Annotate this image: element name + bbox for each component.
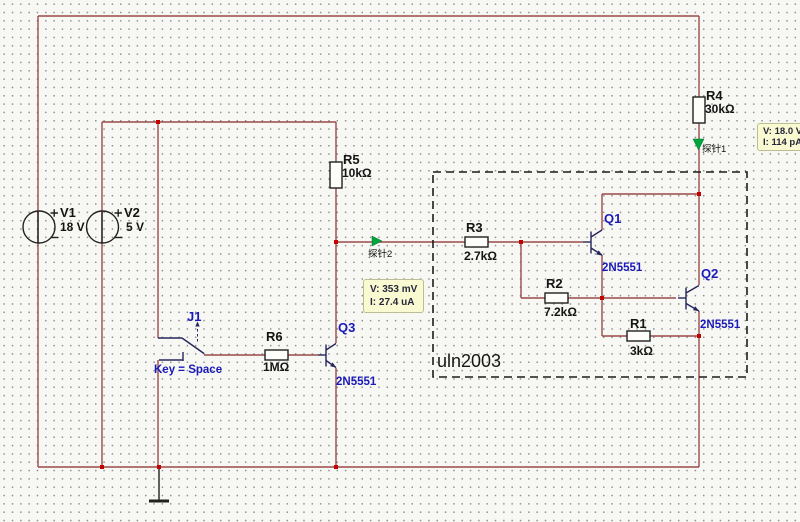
probe2-label[interactable]: 探针2 — [368, 246, 392, 260]
uln2003-boundary-box[interactable] — [433, 172, 747, 377]
probe1-current-readout: I: 114 pA — [763, 137, 800, 148]
junction-dot — [100, 465, 104, 469]
resistor-r3-body[interactable] — [465, 237, 488, 247]
r5-ref-label[interactable]: R5 — [343, 152, 360, 167]
v1-ref-label[interactable]: V1 — [60, 205, 76, 220]
resistor-r5-body[interactable] — [330, 162, 342, 188]
r1-value-label[interactable]: 3kΩ — [630, 344, 653, 358]
source-v2[interactable] — [87, 209, 123, 243]
v2-ref-label[interactable]: V2 — [124, 205, 140, 220]
q1-ref-label[interactable]: Q1 — [604, 211, 621, 226]
r2-ref-label[interactable]: R2 — [546, 276, 563, 291]
junction-dot — [334, 465, 338, 469]
resistor-r4-body[interactable] — [693, 97, 705, 123]
schematic-canvas: V1 18 V V2 5 V R5 10kΩ R4 30kΩ R3 2.7kΩ … — [0, 0, 800, 522]
r3-ref-label[interactable]: R3 — [466, 220, 483, 235]
transistor-q2[interactable] — [678, 286, 699, 312]
resistor-r2-body[interactable] — [545, 293, 568, 303]
probe2-tooltip: V: 353 mV I: 27.4 uA — [363, 279, 424, 313]
probe2-arrow-icon[interactable] — [372, 236, 382, 246]
uln2003-label[interactable]: uln2003 — [437, 351, 501, 372]
wire-r1-row[interactable] — [602, 298, 699, 336]
schematic-drawing — [0, 0, 800, 522]
r3-value-label[interactable]: 2.7kΩ — [464, 249, 497, 263]
junction-dot — [600, 296, 604, 300]
q2-ref-label[interactable]: Q2 — [701, 266, 718, 281]
r6-ref-label[interactable]: R6 — [266, 329, 283, 344]
r5-value-label[interactable]: 10kΩ — [342, 166, 372, 180]
junction-dot — [334, 240, 338, 244]
switch-j1[interactable] — [158, 322, 204, 362]
v1-value-label[interactable]: 18 V — [60, 220, 85, 234]
transistor-q3[interactable] — [318, 344, 336, 368]
ground-symbol[interactable] — [149, 467, 169, 501]
probe2-voltage-readout: V: 353 mV — [370, 283, 417, 296]
transistor-q1[interactable] — [583, 230, 603, 256]
q2-part-label[interactable]: 2N5551 — [700, 319, 740, 331]
junction-dot — [156, 120, 160, 124]
r6-value-label[interactable]: 1MΩ — [263, 360, 289, 374]
j1-ref-label[interactable]: J1 — [187, 309, 201, 324]
wire-r3-to-r2[interactable] — [521, 242, 676, 298]
v2-value-label[interactable]: 5 V — [126, 220, 144, 234]
probe1-tooltip: V: 18.0 V I: 114 pA — [757, 123, 800, 151]
j1-key-label[interactable]: Key = Space — [154, 364, 222, 376]
r1-ref-label[interactable]: R1 — [630, 316, 647, 331]
junction-dot — [697, 334, 701, 338]
resistor-r6-body[interactable] — [265, 350, 288, 360]
junction-dot — [157, 465, 161, 469]
probe2-current-readout: I: 27.4 uA — [370, 296, 417, 309]
junction-dot — [519, 240, 523, 244]
junction-dot — [697, 192, 701, 196]
q3-ref-label[interactable]: Q3 — [338, 320, 355, 335]
q3-part-label[interactable]: 2N5551 — [336, 376, 376, 388]
probe1-label[interactable]: 探针1 — [702, 141, 726, 155]
resistor-r1-body[interactable] — [627, 331, 650, 341]
r4-ref-label[interactable]: R4 — [706, 88, 723, 103]
r2-value-label[interactable]: 7.2kΩ — [544, 305, 577, 319]
r4-value-label[interactable]: 30kΩ — [705, 102, 735, 116]
q1-part-label[interactable]: 2N5551 — [602, 262, 642, 274]
probe1-voltage-readout: V: 18.0 V — [763, 126, 800, 137]
source-v1[interactable] — [23, 209, 59, 243]
